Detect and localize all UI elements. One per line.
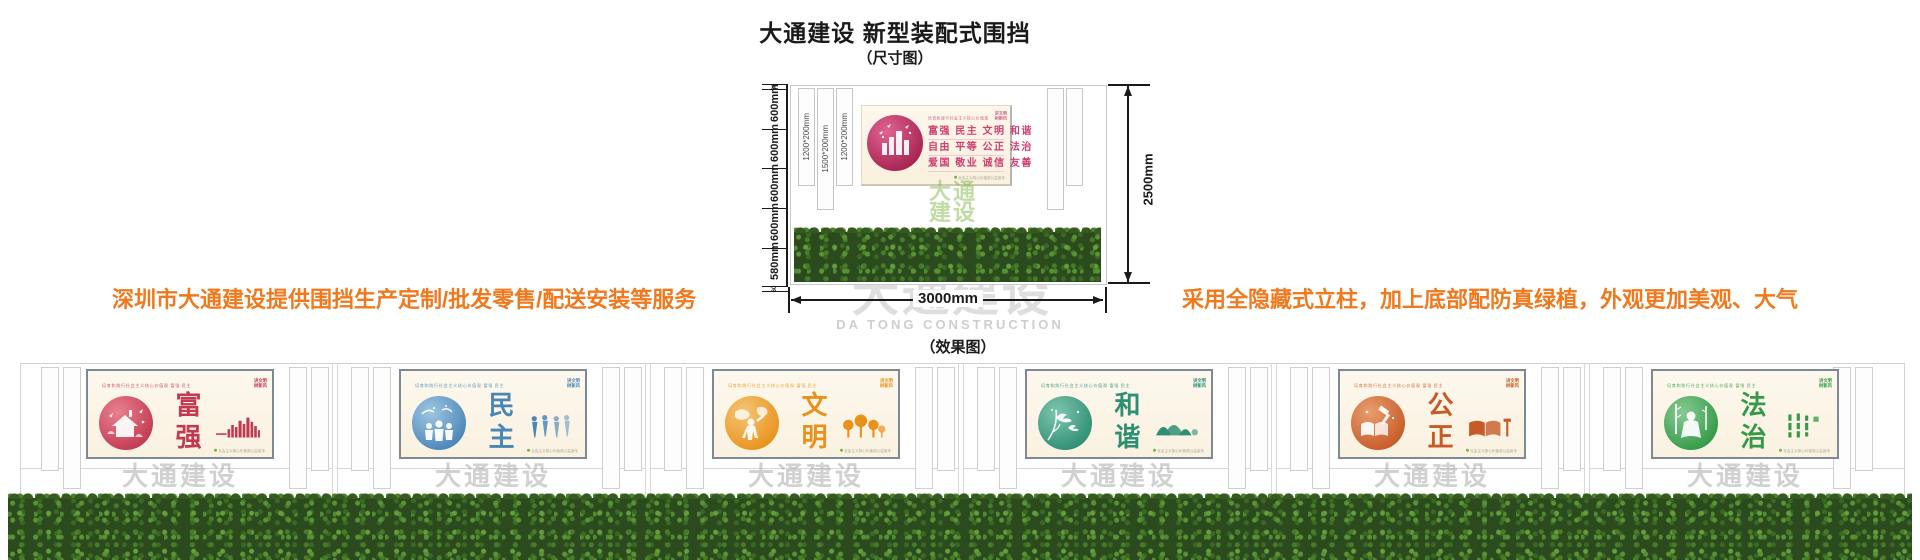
watermark-zh: 大通建设 <box>1651 456 1839 493</box>
birds-branches-circle-icon <box>1038 396 1092 450</box>
fence-post-slat <box>977 367 995 471</box>
banner-footer: 社会主义核心价值观公益宣传 <box>1779 448 1830 453</box>
banner-footer: 社会主义核心价值观公益宣传 <box>214 448 265 453</box>
fence-post-slat <box>1541 367 1559 489</box>
value-banner-panel-4: 培育和践行社会主义核心价值观 富强 民主 文明 和谐 自由 平等 公正 法治 爱… <box>1025 369 1213 459</box>
figures-icon <box>528 412 574 440</box>
watermark-zh: 大通建设 <box>399 456 587 493</box>
banner-footer: 社会主义核心价值观公益宣传 <box>1153 448 1204 453</box>
post-size-label: 1500*200mm <box>821 125 830 173</box>
core-value-text: 和谐 <box>1111 391 1141 455</box>
mountains-icon <box>1154 412 1200 440</box>
green-dot-icon <box>840 449 843 452</box>
module-divider <box>645 364 651 504</box>
arrow-down-icon <box>1124 272 1132 282</box>
post-slat <box>1066 88 1083 186</box>
post-slat: 1200*200mm <box>798 88 815 186</box>
core-value-text: 富强 <box>172 391 202 455</box>
green-dot-icon <box>527 449 530 452</box>
effect-diagram-label: （效果图） <box>920 336 995 357</box>
dimension-segment: 600mm <box>762 129 788 169</box>
fence-post-slat <box>915 367 933 489</box>
values-banner: 培育和践行社会主义核心价值观 富强 民主 文明 和谐自由 平等 公正 法治爱国 … <box>861 105 1012 186</box>
dimension-segment: 600mm <box>762 89 788 129</box>
banner-footer: 社会主义核心价值观公益宣传 <box>527 448 578 453</box>
core-value-text: 民主 <box>485 391 515 455</box>
fence-post-slat <box>373 367 391 489</box>
fence-post-slat <box>63 367 81 489</box>
trees-icon <box>841 412 887 440</box>
left-note: 深圳市大通建设提供围挡生产定制/批发零售/配送安装等服务 <box>112 282 696 314</box>
effect-fence: 培育和践行社会主义核心价值观 富强 民主 文明 和谐 自由 平等 公正 法治 爱… <box>20 363 1905 505</box>
fence-post-slat <box>624 367 642 471</box>
arrow-left-icon <box>791 296 801 304</box>
value-banner-panel-1: 培育和践行社会主义核心价值观 富强 民主 文明 和谐 自由 平等 公正 法治 爱… <box>86 369 274 459</box>
gavel-book-circle-icon <box>1351 396 1405 450</box>
fence-post-slat <box>999 367 1017 489</box>
fence-panel-outline: 1200*200mm1500*200mm1200*200mm 培育和践行社会主义… <box>790 85 1107 285</box>
module-divider <box>1584 364 1590 504</box>
dimension-line <box>786 84 788 286</box>
banner-footer: 社会主义核心价值观公益宣传 <box>840 448 891 453</box>
dimension-segment-label: 600mm <box>769 96 781 122</box>
total-width-label: 3000mm <box>913 290 983 307</box>
watermark-zh: 大通建设 <box>86 456 274 493</box>
banner-footer: 社会主义核心价值观公益宣传 <box>1466 448 1517 453</box>
dimension-segment-label: 60 <box>772 276 778 302</box>
green-dot-icon <box>1779 449 1782 452</box>
fence-post-slat <box>289 367 307 489</box>
house-circle-icon <box>99 396 153 450</box>
city-bars-icon <box>215 412 261 440</box>
fence-post-slat <box>1603 367 1621 471</box>
civility-logo: 讲文明 树新风 <box>1506 379 1519 389</box>
civility-logo: 讲文明 树新风 <box>880 379 893 389</box>
value-banner-panel-2: 培育和践行社会主义核心价值观 富强 民主 文明 和谐 自由 平等 公正 法治 爱… <box>399 369 587 459</box>
civility-logo: 讲文明 树新风 <box>254 379 267 389</box>
core-values-row: 爱国 敬业 诚信 友善 <box>928 156 1004 172</box>
fence-post-slat <box>1228 367 1246 489</box>
height-segment-dimensions: 60600mm600mm600mm600mm580mm60 <box>762 84 788 292</box>
dimension-segment: 60 <box>762 286 788 291</box>
watermark-zh: 大通建设 <box>1338 456 1526 493</box>
book-gavel-icon <box>1467 412 1513 440</box>
dimension-segment-label: 600mm <box>769 136 781 162</box>
total-width-dimension: 3000mm <box>788 287 1108 315</box>
fence-post-slat <box>41 367 59 471</box>
bamboo-figure-circle-icon <box>1664 396 1718 450</box>
civility-logo: 讲文明 树新风 <box>1193 379 1206 389</box>
worldmap-figure-circle-icon <box>725 396 779 450</box>
civility-logo: 讲文明 树新风 <box>1819 379 1832 389</box>
module-divider <box>958 364 964 504</box>
post-size-label: 1200*200mm <box>840 113 849 161</box>
globe-family-circle-icon <box>412 396 466 450</box>
module-divider <box>1271 364 1277 504</box>
fence-post-slat <box>937 367 955 471</box>
post-slat: 1500*200mm <box>817 88 834 210</box>
fence-post-slat <box>1625 367 1643 489</box>
arrow-right-icon <box>1093 296 1103 304</box>
banner-top-strip: 培育和践行社会主义核心价值观 富强 民主 文明 和谐 自由 平等 公正 法治 爱… <box>1667 382 1758 388</box>
post-slat <box>1047 88 1064 210</box>
value-banner-panel-5: 培育和践行社会主义核心价值观 富强 民主 文明 和谐 自由 平等 公正 法治 爱… <box>1338 369 1526 459</box>
dimension-segment: 600mm <box>762 168 788 208</box>
fence-post-slat <box>1290 367 1308 471</box>
green-dot-icon <box>1153 449 1156 452</box>
fence-post-slat <box>311 367 329 471</box>
module-divider <box>332 364 338 504</box>
banner-top-strip: 培育和践行社会主义核心价值观 富强 民主 文明 和谐 自由 平等 公正 法治 爱… <box>1354 382 1445 388</box>
fence-post-slat <box>351 367 369 471</box>
papercut-city-circle-icon <box>867 115 923 171</box>
core-value-text: 法治 <box>1737 391 1767 455</box>
civility-logo: 讲文明 树新风 <box>995 112 1007 122</box>
civility-logo: 讲文明 树新风 <box>567 379 580 389</box>
total-height-dimension: 2500mm <box>1108 84 1168 319</box>
banner-header: 培育和践行社会主义核心价值观 <box>928 115 989 121</box>
fence-post-slat <box>1250 367 1268 471</box>
diagram-hedge <box>794 232 1101 282</box>
dimension-segment-label: 600mm <box>769 176 781 202</box>
core-value-text: 公正 <box>1424 391 1454 455</box>
banner-top-strip: 培育和践行社会主义核心价值观 富强 民主 文明 和谐 自由 平等 公正 法治 爱… <box>415 382 506 388</box>
arrow-up-icon <box>1124 86 1132 96</box>
fence-post-slat <box>686 367 704 489</box>
value-banner-panel-6: 培育和践行社会主义核心价值观 富强 民主 文明 和谐 自由 平等 公正 法治 爱… <box>1651 369 1839 459</box>
core-values-row: 自由 平等 公正 法治 <box>928 140 1004 156</box>
fence-post-slat <box>1563 367 1581 471</box>
fence-post-slat <box>602 367 620 489</box>
poster: 大通建设 新型装配式围挡 （尺寸图） 深圳市大通建设提供围挡生产定制/批发零售/… <box>0 0 1920 560</box>
banner-top-strip: 培育和践行社会主义核心价值观 富强 民主 文明 和谐 自由 平等 公正 法治 爱… <box>102 382 193 388</box>
post-slat: 1200*200mm <box>836 88 853 186</box>
fence-post-slat <box>1312 367 1330 489</box>
right-note: 采用全隐藏式立柱，加上底部配防真绿植，外观更加美观、大气 <box>1182 282 1798 314</box>
watermark-zh: 大通建设 <box>712 456 900 493</box>
banner-top-strip: 培育和践行社会主义核心价值观 富强 民主 文明 和谐 自由 平等 公正 法治 爱… <box>1041 382 1132 388</box>
core-values-rows: 富强 民主 文明 和谐自由 平等 公正 法治爱国 敬业 诚信 友善 <box>928 124 1004 172</box>
green-dot-icon <box>1466 449 1469 452</box>
post-size-label: 1200*200mm <box>802 113 811 161</box>
main-hedge <box>8 498 1912 560</box>
fence-post-slat <box>664 367 682 471</box>
value-banner-panel-3: 培育和践行社会主义核心价值观 富强 民主 文明 和谐 自由 平等 公正 法治 爱… <box>712 369 900 459</box>
fence-post-slat <box>1855 367 1873 471</box>
dimension-segment-label: 600mm <box>769 215 781 241</box>
total-height-label: 2500mm <box>1141 153 1156 205</box>
banner-top-strip: 培育和践行社会主义核心价值观 富强 民主 文明 和谐 自由 平等 公正 法治 爱… <box>728 382 819 388</box>
core-value-text: 文明 <box>798 391 828 455</box>
core-values-row: 富强 民主 文明 和谐 <box>928 124 1004 140</box>
green-dot-icon <box>214 449 217 452</box>
bamboo-text-icon <box>1780 412 1826 440</box>
watermark-zh: 大通建设 <box>1025 456 1213 493</box>
watermark-green: 大通 建设 <box>929 181 977 223</box>
